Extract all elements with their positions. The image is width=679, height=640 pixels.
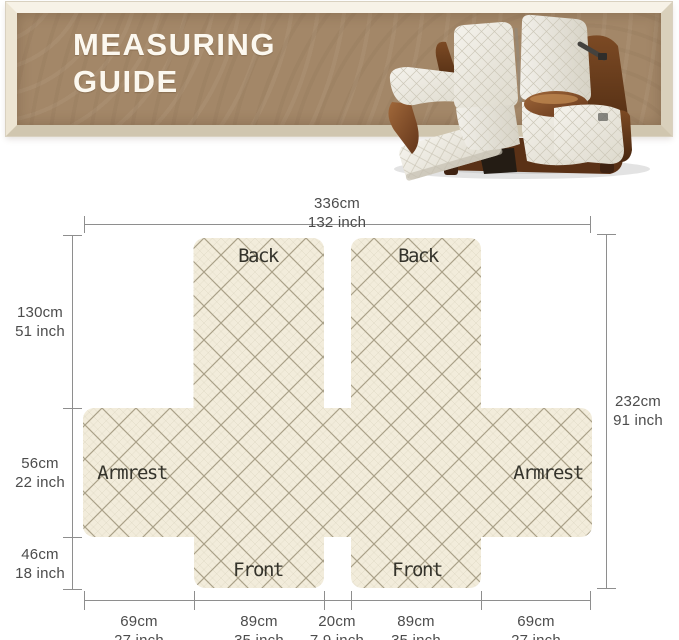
dim-bottom-armrest-left: 69cm 27 inch — [91, 612, 187, 640]
dim-bottom-armrest-right: 69cm 27 inch — [488, 612, 584, 640]
armrest-right-label: Armrest — [488, 462, 608, 484]
cover-shape — [83, 238, 592, 588]
dim-bottom-seat-right: 89cm 35 inch — [368, 612, 464, 640]
measuring-guide-image: MEASURING GUIDE — [0, 0, 679, 640]
recliner-sofa-photo — [384, 12, 668, 184]
dim-armrest-height: 56cm 22 inch — [4, 454, 76, 492]
back-left-label: Back — [198, 245, 318, 267]
dim-total-width: 336cm 132 inch — [277, 194, 397, 232]
back-right-label: Back — [358, 245, 478, 267]
dim-front-height: 46cm 18 inch — [4, 545, 76, 583]
dim-back-height: 130cm 51 inch — [4, 303, 76, 341]
brand-tag — [598, 113, 608, 121]
bottom-dimension-line — [84, 591, 591, 610]
armrest-left-label: Armrest — [72, 462, 192, 484]
front-right-label: Front — [357, 559, 477, 581]
front-left-label: Front — [198, 559, 318, 581]
dim-total-height: 232cm 91 inch — [600, 392, 676, 430]
left-dimension-line — [63, 235, 82, 590]
